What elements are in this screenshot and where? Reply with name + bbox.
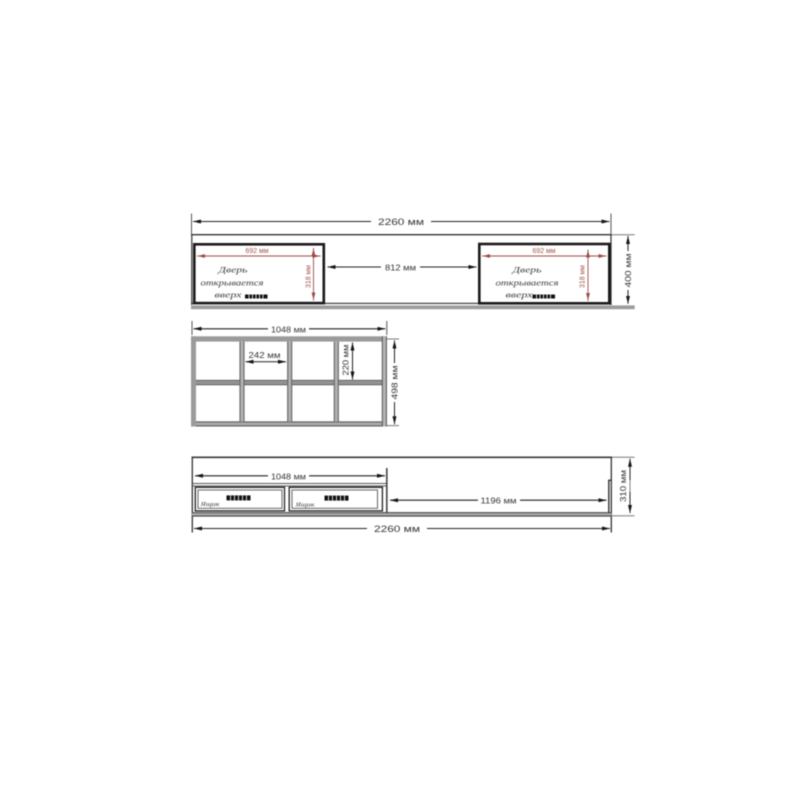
svg-text:220 мм: 220 мм: [342, 345, 351, 376]
svg-text:318 мм: 318 мм: [580, 265, 587, 288]
svg-text:Ящик: Ящик: [294, 502, 315, 509]
svg-text:Ящик: Ящик: [199, 501, 220, 508]
svg-text:498 мм: 498 мм: [390, 365, 400, 399]
svg-text:Дверь: Дверь: [511, 266, 542, 275]
svg-text:242 мм: 242 мм: [249, 351, 281, 360]
svg-text:открывается: открывается: [201, 279, 264, 288]
svg-text:Дверь: Дверь: [217, 266, 248, 275]
svg-text:вверх: вверх: [506, 291, 534, 300]
svg-text:400 мм: 400 мм: [623, 253, 633, 287]
svg-text:2260 мм: 2260 мм: [374, 524, 420, 534]
svg-text:310 мм: 310 мм: [619, 470, 628, 502]
svg-text:1048 мм: 1048 мм: [271, 324, 306, 334]
svg-text:692 мм: 692 мм: [246, 246, 269, 255]
svg-text:812 мм: 812 мм: [385, 263, 416, 273]
svg-text:вверх: вверх: [215, 291, 243, 300]
svg-text:1196 мм: 1196 мм: [481, 496, 517, 506]
svg-text:1048 мм: 1048 мм: [271, 471, 306, 481]
svg-text:2260 мм: 2260 мм: [378, 217, 424, 227]
svg-text:318 мм: 318 мм: [306, 265, 313, 288]
svg-text:692 мм: 692 мм: [533, 246, 556, 255]
svg-text:открывается: открывается: [496, 279, 559, 288]
